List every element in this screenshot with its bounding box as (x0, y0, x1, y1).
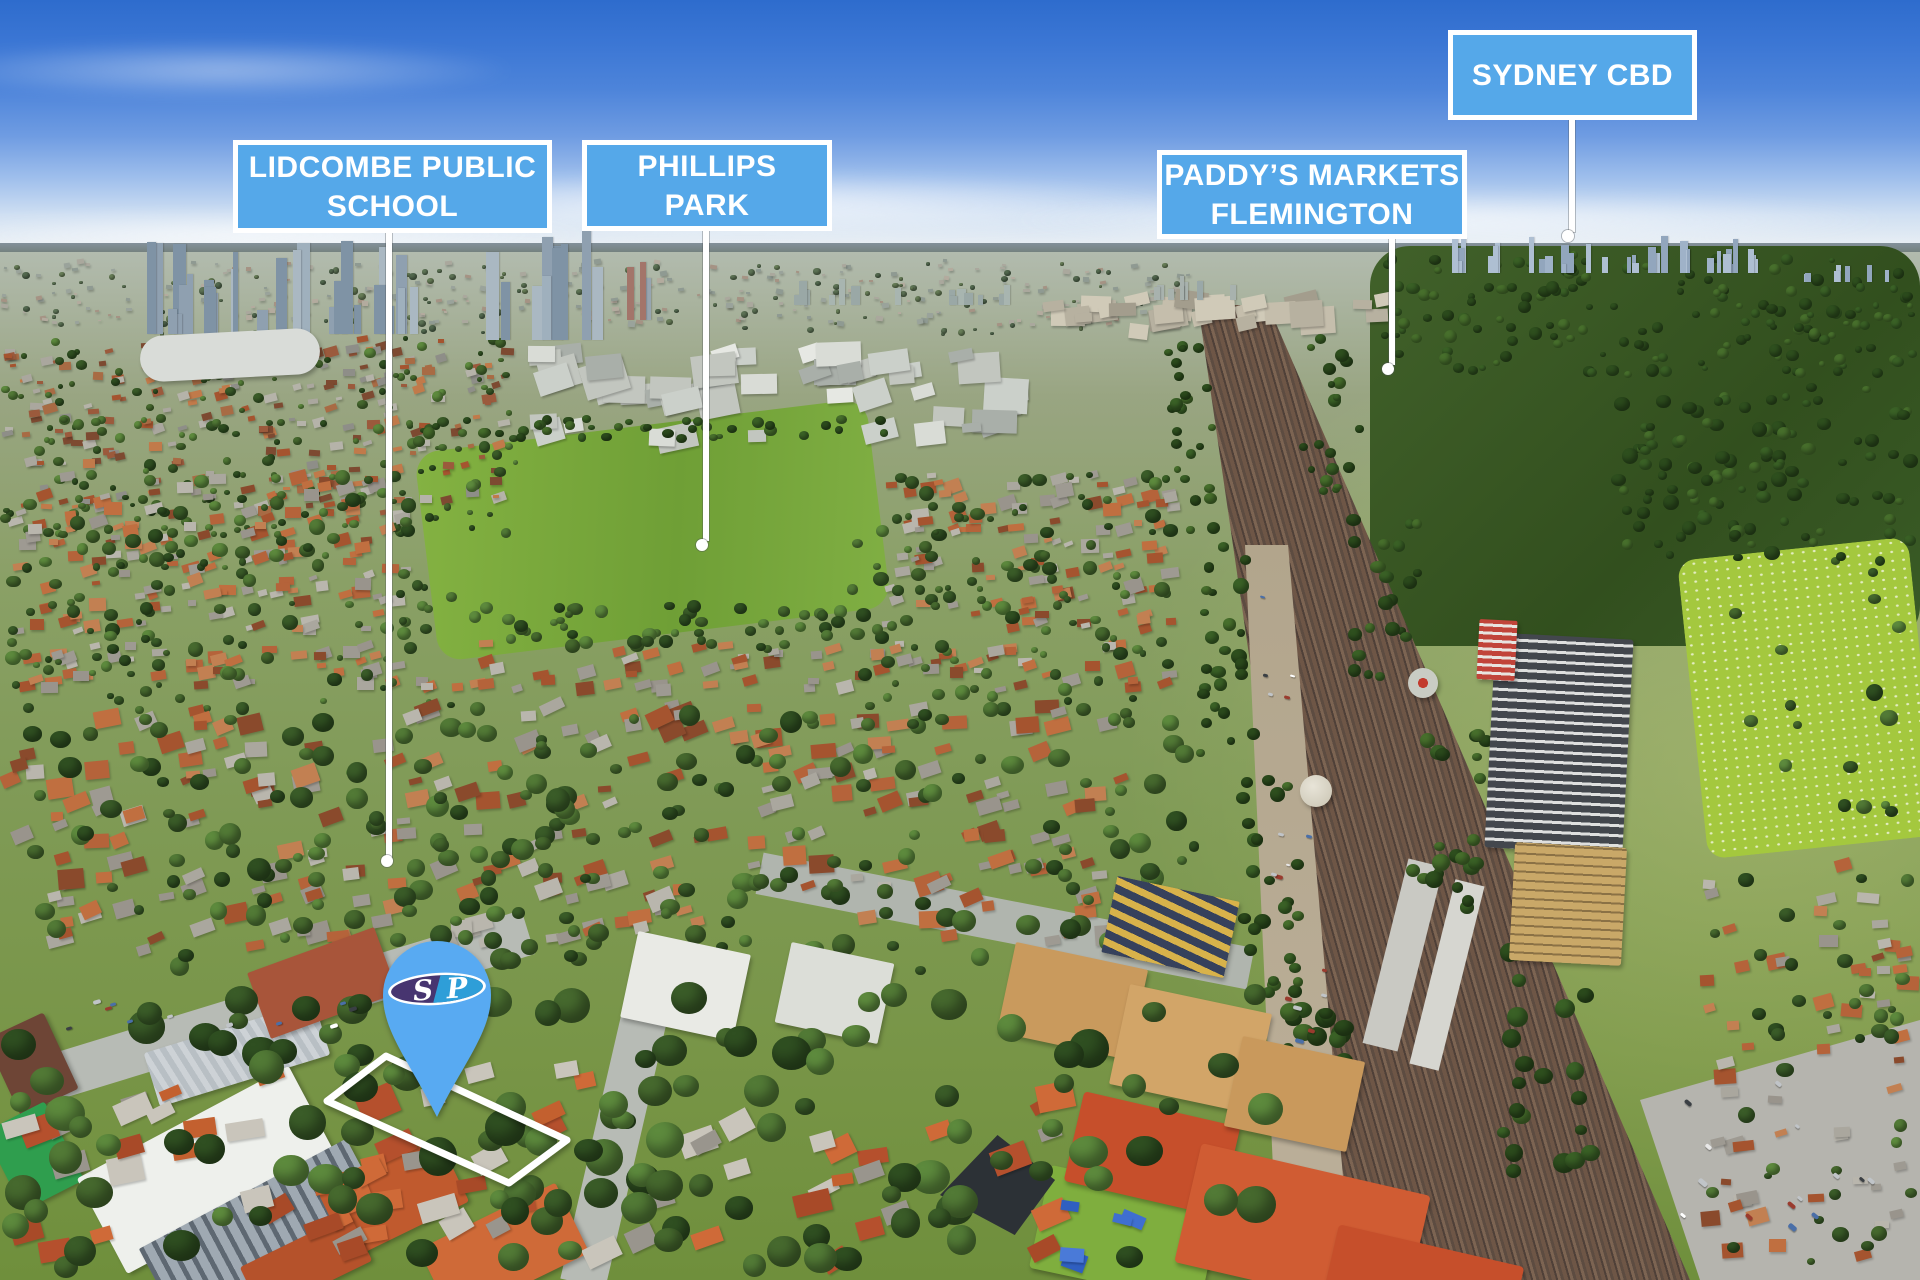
distant-tree (1162, 263, 1168, 268)
tree (653, 866, 669, 879)
tree (872, 624, 883, 635)
tree (780, 867, 797, 882)
tree (494, 467, 505, 477)
tree (821, 630, 833, 641)
distant-building (1145, 281, 1151, 286)
tree (1452, 882, 1463, 893)
tree (1086, 540, 1096, 550)
tree (1811, 274, 1824, 286)
tree (1005, 611, 1019, 625)
tree (153, 389, 158, 394)
tree (535, 837, 550, 851)
tree (1785, 958, 1798, 971)
tree (163, 650, 170, 657)
tree (143, 468, 149, 474)
tree (466, 481, 477, 492)
house-roof (782, 845, 807, 865)
distant-tree (836, 309, 841, 314)
house-roof (126, 550, 139, 560)
tree (144, 475, 156, 486)
tree (355, 621, 363, 628)
tree (1895, 973, 1910, 986)
leader-line-sydney-cbd (1569, 118, 1575, 232)
house-roof (1817, 1043, 1830, 1054)
tree (434, 792, 446, 803)
tree (1346, 514, 1361, 526)
tree (928, 1208, 951, 1228)
tree (736, 745, 755, 763)
city-tower (1627, 257, 1631, 273)
distant-tree (935, 290, 942, 296)
tree (1622, 506, 1632, 514)
house-roof (748, 836, 765, 850)
house-roof (1700, 1210, 1721, 1227)
tree (1059, 844, 1072, 855)
tree (1820, 286, 1831, 297)
tree (565, 611, 573, 618)
tree (725, 1196, 753, 1219)
tree (398, 532, 404, 538)
house-roof (259, 426, 268, 432)
tree (44, 437, 50, 443)
tree (1029, 1161, 1053, 1181)
tree (30, 1067, 65, 1095)
tree (1116, 1246, 1143, 1269)
tree (852, 539, 863, 548)
house-roof (343, 867, 360, 881)
tree (1712, 474, 1722, 483)
house-roof (1872, 920, 1888, 929)
warehouse-roof (585, 353, 624, 380)
tree (821, 421, 830, 429)
house-roof (966, 524, 981, 532)
tree (212, 1207, 232, 1227)
tree (1793, 721, 1802, 729)
house-roof (45, 776, 74, 800)
distant-tree (741, 311, 748, 317)
tree (1643, 495, 1652, 504)
endpoint-circle-paddys-markets (1382, 363, 1394, 375)
distant-building (462, 320, 468, 324)
tree (542, 427, 552, 436)
tree (1278, 901, 1292, 913)
tree (1236, 792, 1250, 804)
distant-tree (22, 272, 30, 280)
tree (1149, 477, 1162, 490)
tree (1505, 1144, 1523, 1162)
tree (79, 481, 89, 490)
tree (24, 1199, 48, 1223)
distant-building (875, 316, 882, 322)
tree (1817, 418, 1831, 429)
distant-tree (329, 269, 334, 273)
tree (1891, 1137, 1902, 1148)
tree (479, 441, 490, 452)
distant-building (747, 301, 753, 306)
city-tower (542, 276, 550, 340)
tree (778, 606, 790, 617)
city-tower (1168, 289, 1174, 300)
house-roof (964, 828, 981, 842)
distant-building (898, 312, 901, 314)
tree (115, 433, 125, 442)
distant-tree (254, 275, 259, 279)
tree (1462, 895, 1474, 907)
tree (1233, 578, 1249, 594)
tree (1453, 363, 1464, 373)
tree (1571, 1091, 1588, 1105)
warehouse-roof (706, 358, 736, 376)
tree (156, 414, 166, 423)
tree (756, 643, 766, 651)
tree (907, 719, 918, 729)
tree (55, 398, 64, 406)
city-tower (829, 295, 835, 305)
tree (1016, 915, 1040, 935)
house-roof (1085, 660, 1100, 671)
tree (928, 502, 938, 511)
tree (935, 640, 949, 653)
tree (1110, 839, 1130, 859)
tree (478, 351, 483, 356)
tree (689, 1174, 713, 1197)
house-roof (316, 580, 329, 591)
tree (43, 528, 54, 537)
tree (148, 529, 163, 542)
tree (1242, 818, 1256, 829)
tree (1174, 372, 1184, 381)
tree (1248, 923, 1260, 935)
distant-building (874, 297, 879, 300)
tree (1196, 749, 1204, 757)
tree (1826, 305, 1840, 318)
tree (1468, 366, 1479, 375)
tree (249, 1050, 284, 1084)
house-roof (168, 441, 176, 446)
tree (514, 620, 528, 632)
tree (693, 417, 703, 426)
callout-text-line: SCHOOL (327, 187, 458, 226)
tree (1467, 834, 1480, 846)
callout-paddys-markets-flemington: PADDY’S MARKETS FLEMINGTON (1157, 150, 1467, 239)
house-roof (209, 513, 224, 525)
distant-tree (421, 329, 427, 334)
tree (137, 1002, 162, 1025)
distant-building (667, 278, 672, 281)
tree (127, 671, 134, 678)
tree (210, 488, 216, 494)
distant-tree (122, 285, 126, 288)
tree (1102, 643, 1111, 651)
distant-building (451, 286, 456, 289)
warehouse-roof (836, 360, 863, 383)
tree (130, 756, 149, 772)
distant-tree (773, 296, 777, 300)
city-tower (276, 258, 287, 334)
tree (50, 731, 70, 748)
distant-building (726, 303, 733, 308)
house-roof (1128, 676, 1139, 683)
distant-building (1037, 311, 1044, 315)
tree (236, 702, 249, 714)
distant-building (415, 280, 421, 284)
tree (1701, 475, 1713, 486)
house-roof (184, 522, 196, 531)
tree (1197, 689, 1210, 699)
distant-tree (422, 269, 428, 275)
distant-building (215, 262, 219, 265)
leader-line-phillips-park (703, 228, 709, 541)
house-roof (125, 642, 137, 650)
tree (100, 800, 122, 818)
tree (1319, 487, 1328, 495)
house-roof (317, 662, 327, 668)
house-roof (343, 369, 355, 376)
tree (8, 391, 19, 400)
tree (1676, 532, 1686, 542)
tree (1807, 312, 1813, 317)
warehouse-roof (961, 422, 981, 433)
tree (580, 874, 591, 883)
tree (646, 1122, 684, 1158)
city-tower (1632, 263, 1640, 273)
tree (1054, 1041, 1084, 1069)
tree (601, 433, 611, 442)
tree (831, 616, 845, 628)
distant-tree (429, 325, 437, 331)
tree (194, 1134, 225, 1165)
tree (1659, 458, 1673, 470)
callout-lidcombe-public-school: LIDCOMBE PUBLIC SCHOOL (233, 140, 552, 233)
tree (1381, 332, 1389, 339)
distant-tree (427, 301, 431, 304)
distant-tree (423, 297, 428, 301)
tree (1115, 785, 1127, 796)
tree (1468, 857, 1483, 870)
tree (1884, 514, 1896, 525)
city-tower (532, 286, 543, 340)
tree (752, 417, 764, 428)
tree (582, 415, 591, 422)
house-roof (257, 772, 276, 787)
distant-building (519, 271, 525, 275)
tree (459, 898, 480, 915)
tree (412, 580, 423, 591)
tree (157, 507, 167, 515)
tree (744, 1075, 779, 1107)
city-tower (895, 288, 901, 305)
city-tower (1586, 244, 1592, 273)
tree (892, 514, 902, 524)
distant-building (779, 302, 783, 305)
tree (1283, 920, 1294, 930)
tree (314, 833, 331, 848)
tree (806, 1048, 834, 1074)
tree (1512, 1077, 1526, 1089)
tree (1855, 346, 1863, 353)
tree (952, 502, 966, 513)
distant-building (72, 267, 78, 271)
tree (629, 822, 642, 833)
tree (1723, 342, 1731, 349)
callout-text-line: PHILLIPS (637, 147, 776, 186)
distant-tree (910, 287, 914, 290)
house-roof (98, 361, 106, 366)
house-roof (811, 651, 823, 660)
tree (1506, 1164, 1521, 1177)
tree (151, 580, 163, 590)
house-roof (177, 482, 194, 494)
tree (1355, 425, 1364, 434)
tree (1865, 452, 1876, 461)
tree (1393, 540, 1405, 552)
tree (72, 478, 79, 484)
tree (312, 559, 324, 571)
tree (1873, 302, 1880, 309)
tree (1130, 571, 1139, 579)
tree (559, 912, 573, 925)
distant-building (792, 308, 795, 310)
tree (1550, 333, 1557, 340)
tree (169, 854, 185, 867)
tree (1897, 410, 1910, 420)
distant-building (939, 280, 945, 284)
house-roof (41, 504, 52, 510)
city-tower (1867, 265, 1872, 282)
house-roof (1092, 870, 1108, 880)
tree (347, 762, 368, 782)
tree (420, 624, 432, 634)
tree (506, 634, 516, 644)
tree (1771, 1028, 1785, 1041)
tree (1843, 761, 1858, 773)
tree (950, 657, 959, 665)
tree (881, 656, 895, 668)
tree (635, 1050, 656, 1068)
tree (1196, 443, 1204, 450)
tree (107, 644, 119, 654)
tree (1529, 327, 1542, 339)
tree (399, 490, 406, 496)
distant-building (420, 313, 424, 315)
tree (1328, 381, 1336, 388)
tree (534, 422, 542, 429)
callout-text-line: FLEMINGTON (1211, 195, 1414, 234)
tree (915, 897, 931, 910)
tree (480, 887, 498, 904)
tree (58, 757, 82, 779)
tree (1610, 303, 1618, 310)
distant-building (725, 296, 730, 300)
tree (413, 436, 424, 447)
tree (243, 574, 256, 586)
tree (521, 939, 538, 955)
sports-court (1059, 1247, 1084, 1263)
tree (911, 568, 927, 581)
city-tower (1717, 251, 1721, 273)
tree (911, 644, 919, 650)
house-roof (421, 683, 434, 690)
distant-building (355, 263, 361, 266)
tree (1619, 486, 1629, 495)
house-roof (473, 414, 480, 419)
tree (1757, 481, 1766, 490)
tree (1752, 422, 1767, 436)
tree (1434, 267, 1442, 274)
tree (481, 385, 487, 390)
tree (1385, 622, 1399, 636)
tree (565, 639, 580, 653)
city-tower (410, 287, 418, 334)
tree (881, 983, 907, 1007)
house-roof (485, 401, 491, 406)
tree (1235, 669, 1248, 680)
tree (505, 443, 513, 450)
tree (312, 713, 334, 732)
distant-building (779, 271, 783, 274)
house-roof (55, 429, 63, 433)
tree (931, 989, 967, 1020)
house-roof (1713, 1068, 1736, 1084)
tree (111, 378, 121, 386)
tree (346, 788, 368, 809)
house-roof (1721, 1178, 1732, 1185)
callout-text-line: LIDCOMBE PUBLIC (249, 148, 537, 187)
tree (1082, 499, 1093, 510)
tree (210, 902, 228, 920)
leader-line-lidcombe-public-school (386, 230, 392, 857)
tree (1888, 450, 1898, 460)
distant-building (246, 267, 251, 271)
tree (232, 431, 240, 438)
distant-building (627, 321, 634, 327)
tree (146, 404, 154, 411)
city-tower (1180, 276, 1184, 300)
tree (476, 987, 513, 1017)
tree (292, 996, 320, 1020)
tree (1677, 288, 1684, 295)
tree (107, 883, 118, 892)
tree (1163, 524, 1179, 537)
city-tower (1661, 236, 1668, 273)
tree (1142, 1002, 1166, 1023)
distant-building (312, 299, 319, 304)
tree (1435, 748, 1450, 761)
tree (1806, 383, 1817, 393)
tree (1211, 666, 1225, 678)
house-roof (118, 741, 134, 755)
house-roof (1035, 611, 1049, 618)
tree (779, 640, 790, 650)
house-roof (886, 481, 898, 488)
tree (694, 828, 710, 842)
tree (91, 418, 100, 426)
tree (1785, 466, 1799, 478)
endpoint-circle-lidcombe-public-school (381, 855, 393, 867)
house-roof (985, 574, 995, 580)
tree (223, 635, 234, 644)
distant-building (927, 288, 932, 291)
tree (1638, 328, 1647, 336)
tree (1866, 344, 1876, 352)
tree (1019, 504, 1027, 511)
tree (1201, 664, 1212, 673)
tree (1164, 349, 1173, 356)
tree (224, 715, 236, 725)
distant-tree (815, 281, 821, 286)
house-roof (575, 681, 594, 696)
tree (1871, 1226, 1887, 1241)
